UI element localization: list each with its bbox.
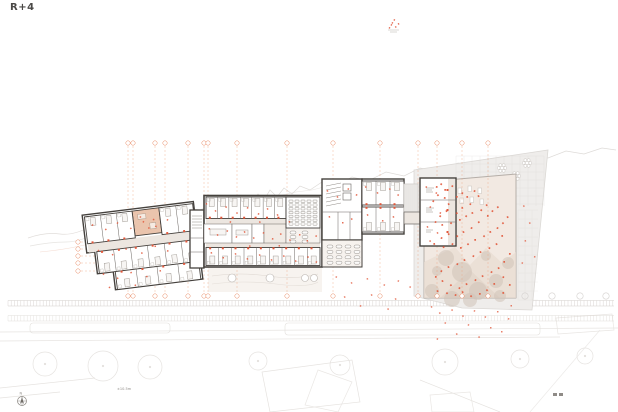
lounge-table: [137, 213, 146, 219]
auditorium: [286, 197, 320, 228]
top-cluster-notes: [388, 30, 399, 32]
speck-group-4: [389, 19, 400, 29]
drawing-sheet: R+4: [0, 0, 618, 412]
lower-garden-strip: [208, 268, 322, 292]
floor-plan-svg: · · · · · · ·: [0, 0, 618, 412]
pavilion-hall: [448, 179, 455, 245]
bar-micro-label: · · · · · · ·: [248, 199, 257, 201]
door-mark: [447, 189, 449, 191]
site-context: [0, 314, 618, 412]
level-annotation: ±10.5m: [117, 387, 132, 391]
strip-1: [8, 316, 614, 322]
sheet-corner-marks: [553, 393, 563, 396]
left-wing: [82, 202, 203, 293]
main-bar: · · · · · · ·: [204, 196, 322, 268]
north-compass-icon: N: [18, 392, 27, 406]
bar-corridor-bottom: [206, 243, 320, 248]
terrace-pavilion: [420, 178, 456, 246]
door-mark: [447, 231, 449, 233]
connector-block: [190, 210, 204, 268]
north-label: N: [20, 392, 23, 396]
lounge-seat: [150, 222, 157, 229]
left-lounge-room: [132, 208, 162, 236]
